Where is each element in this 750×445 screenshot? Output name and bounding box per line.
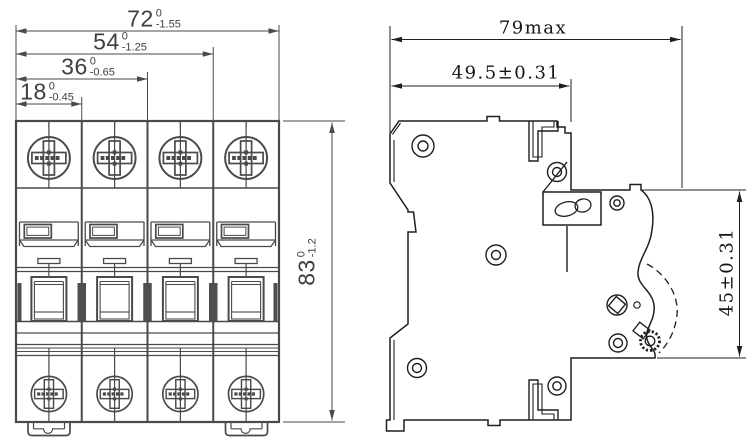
dim-tolerance: 0 -1.25 <box>122 32 147 53</box>
side-view <box>387 117 678 432</box>
toggle-handles <box>16 259 279 322</box>
technical-drawing-page: 72 0 -1.55 54 0 -1.25 36 0 -0.65 18 0 -0… <box>0 0 750 445</box>
side-toggle-window <box>543 192 601 225</box>
side-toggle-handle <box>554 197 593 218</box>
dim-label-depth-max: 79max <box>499 18 567 39</box>
dim-label-width-1pole: 18 0 -0.45 <box>20 79 74 106</box>
rivets <box>408 135 628 395</box>
dim-value: 54 <box>93 29 120 56</box>
dim-label-height: 83 0 -1.2 <box>294 238 321 286</box>
dim-value: 18 <box>20 79 47 106</box>
dim-label-width-2pole: 36 0 -0.65 <box>61 54 115 81</box>
dim-tolerance: 0 -0.45 <box>49 82 74 103</box>
dim-label-front-height: 45±0.31 <box>717 228 738 317</box>
dim-tolerance: 0 -1.55 <box>156 9 181 30</box>
dim-label-depth-body: 49.5±0.31 <box>452 63 561 84</box>
dim-value: 83 <box>294 259 321 286</box>
front-view <box>16 121 279 436</box>
adjustment-gear <box>641 332 660 351</box>
handle-swing-arc <box>647 264 677 353</box>
trip-mechanism <box>607 264 677 353</box>
recess-shadow-bars <box>18 283 278 321</box>
dim-label-width-3pole: 54 0 -1.25 <box>93 29 147 56</box>
dim-tolerance: 0 -0.65 <box>90 57 115 78</box>
dim-tolerance: 0 -1.2 <box>297 238 318 257</box>
side-body-outline <box>387 117 656 432</box>
mounting-feet <box>28 422 268 436</box>
dim-value: 36 <box>61 54 88 81</box>
